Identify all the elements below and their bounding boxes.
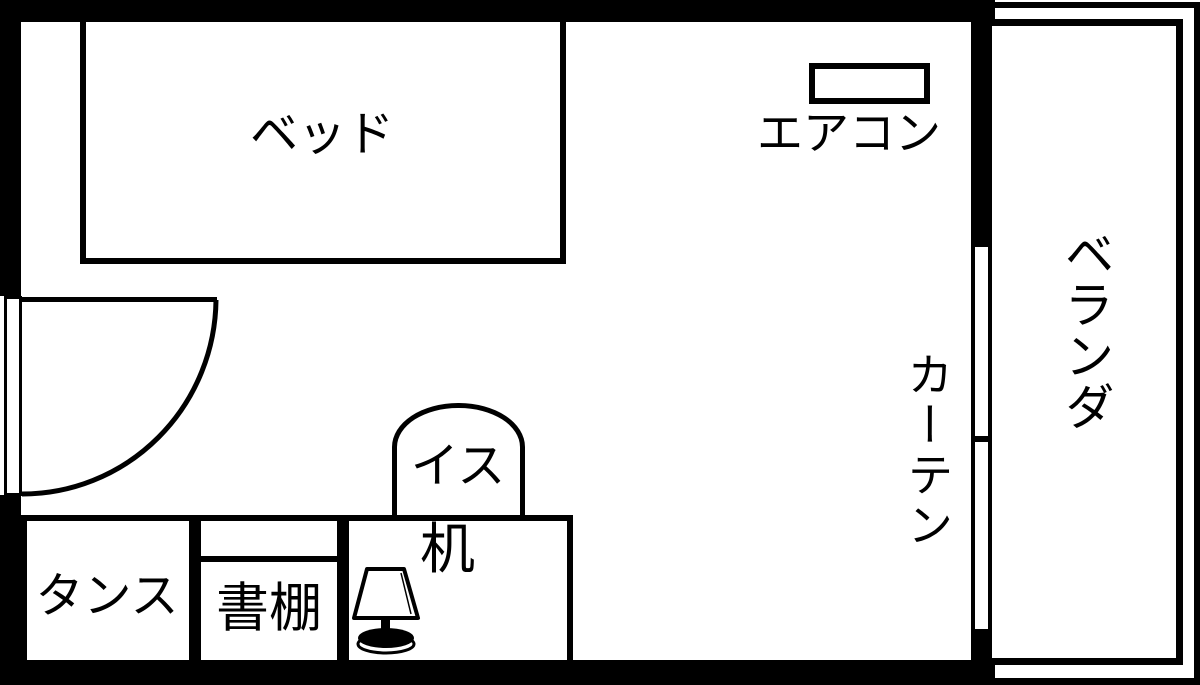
room-floorplan: ベッド エアコン イス 机 タンス 書棚 カーテン ベランダ: [0, 0, 1200, 685]
wall-right-lower: [971, 629, 992, 685]
door-swing-arc: [22, 300, 216, 494]
veranda-inner-bottom: [991, 658, 1183, 665]
wall-left-upper: [0, 0, 21, 296]
veranda-inner-top: [991, 19, 1183, 26]
wall-left-lower: [0, 495, 21, 685]
curtain-label: カーテン: [903, 351, 951, 551]
desk-label: 机: [395, 521, 500, 579]
wall-right-upper: [971, 0, 992, 247]
aircon-label: エアコン: [749, 109, 949, 157]
veranda-outer-bottom: [988, 678, 1200, 685]
bookshelf-label: 書棚: [195, 581, 343, 637]
aircon-unit: [809, 63, 930, 104]
door-opening: [4, 296, 22, 496]
veranda-inner-right: [1176, 19, 1183, 665]
tansu-label: タンス: [26, 571, 188, 621]
window-divider: [971, 436, 992, 442]
bed-label: ベッド: [232, 109, 412, 159]
veranda-outer-right: [1194, 2, 1200, 683]
bookshelf-shelf-divider: [199, 556, 339, 562]
door-leaf: [22, 297, 217, 302]
veranda-label: ベランダ: [1059, 228, 1112, 432]
veranda-outer-top: [988, 2, 1200, 8]
chair-label: イス: [398, 441, 518, 491]
